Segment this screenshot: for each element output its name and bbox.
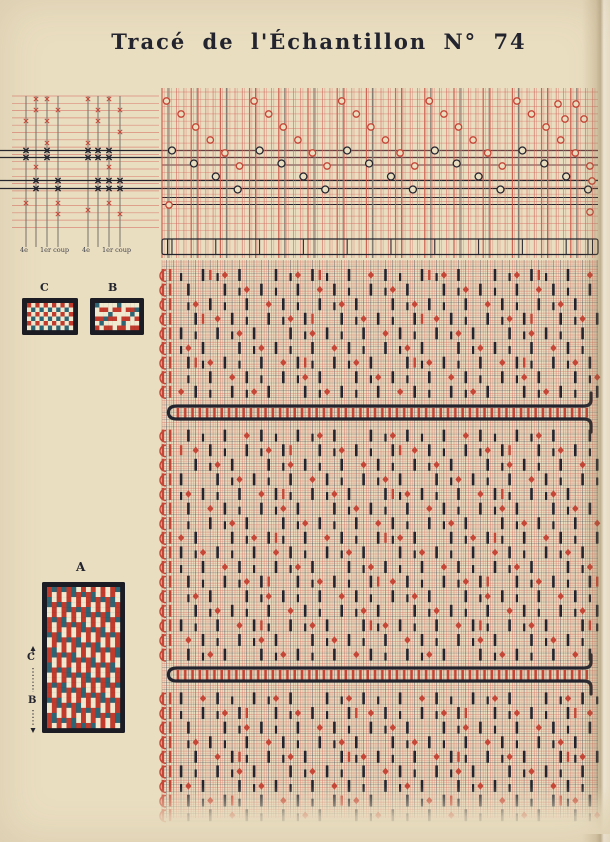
page-title: Tracé de l'Échantillon N° 74 [0, 29, 610, 54]
swatch-a [42, 582, 125, 733]
side-marker-c: C [27, 652, 35, 663]
threading-label-4: 1er coup [102, 246, 131, 254]
threading-label-3: 4e [82, 246, 90, 254]
threading-label-1: 4e [20, 246, 28, 254]
swatch-c [22, 298, 78, 335]
threading-label-2: 1er coup [40, 246, 69, 254]
book-page: Tracé de l'Échantillon N° 74 4e 1er coup… [0, 0, 610, 842]
side-marker-b: B [28, 695, 36, 706]
swatch-c-label: C [40, 281, 49, 294]
swatch-b [90, 298, 144, 335]
left-threading-diagram [12, 96, 159, 247]
swatch-b-label: B [108, 281, 117, 294]
weaving-draft-canvas [0, 0, 610, 842]
swatch-a-label: A [76, 560, 85, 574]
